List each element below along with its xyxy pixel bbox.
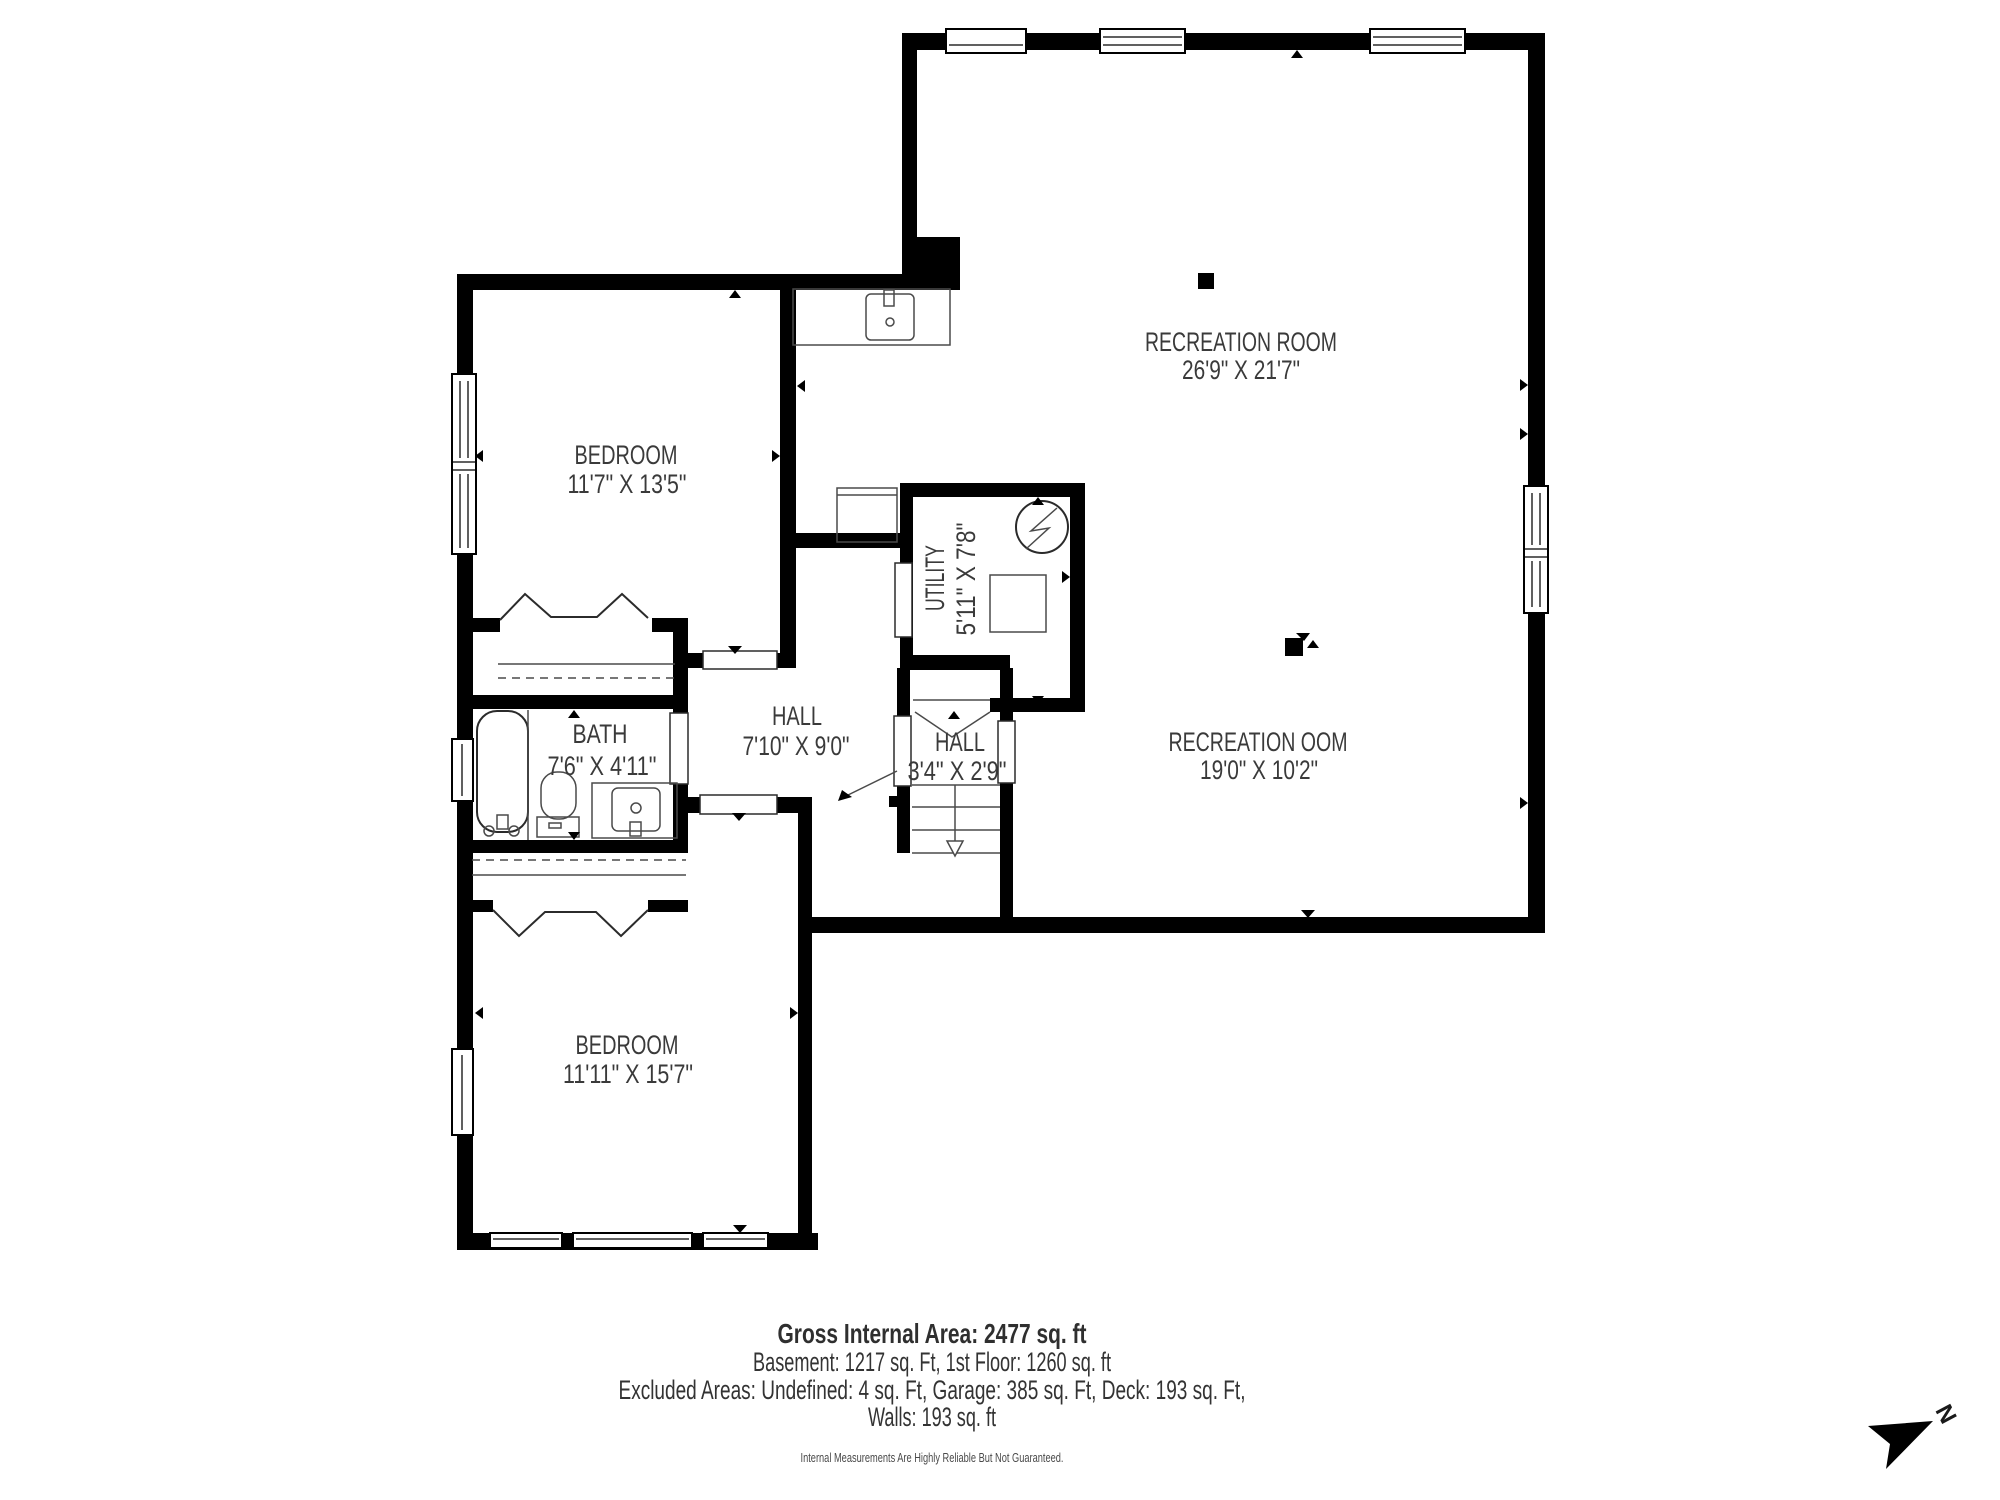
room-label-hall-small: HALL [935, 727, 985, 757]
room-label-recreation-lower: RECREATION OOM [1169, 727, 1348, 757]
floor-plan-canvas: RECREATION ROOM 26'9" X 21'7" RECREATION… [0, 0, 2000, 1500]
marker-down-bedroom2-door [732, 813, 746, 821]
window-bottom-2 [573, 1233, 692, 1248]
wall-rec-left-upper [902, 33, 917, 237]
wall-utility-top [900, 483, 1085, 497]
room-label-utility: UTILITY [920, 545, 950, 611]
room-dims-recreation-lower: 19'0" X 10'2" [1200, 755, 1318, 785]
north-arrow-label: N [1930, 1400, 1962, 1428]
room-dims-utility: 5'11" X 7'8" [951, 523, 981, 636]
room-dims-bedroom-lower: 11'11" X 15'7" [563, 1059, 693, 1089]
kitchen-drain [886, 318, 894, 326]
north-arrow-pointer [1868, 1421, 1933, 1469]
marker-right-recwall-b [1520, 428, 1528, 440]
room-label-bath: BATH [573, 719, 628, 749]
footer: Gross Internal Area: 2477 sq. ft Basemen… [619, 1318, 1246, 1465]
wall-bath-bottom [457, 840, 688, 853]
footer-areas-line2: Excluded Areas: Undefined: 4 sq. Ft, Gar… [619, 1375, 1246, 1405]
toilet-handle [549, 823, 561, 828]
wall-utility-bottom-left [905, 655, 1010, 670]
wall-bedroom2-right [798, 797, 812, 1250]
water-heater-icon [1016, 501, 1068, 553]
footer-areas-line1: Basement: 1217 sq. Ft, 1st Floor: 1260 s… [753, 1347, 1111, 1377]
wall-rec-bottom [798, 917, 1545, 933]
wall-stairs-right [1000, 668, 1013, 932]
marker-left-bedroom2 [475, 1007, 483, 1019]
marker-up-hall2 [948, 711, 960, 719]
marker-up-bath [568, 710, 580, 718]
wall-closet1-stub-left [457, 618, 500, 632]
recess-bath-door [670, 713, 688, 784]
wall-closet2-stub-left [457, 900, 493, 912]
room-dims-hall-main: 7'10" X 9'0" [743, 731, 850, 761]
bathtub [477, 711, 528, 832]
footer-areas-line3: Walls: 193 sq. ft [868, 1402, 996, 1432]
room-dims-recreation-upper: 26'9" X 21'7" [1182, 355, 1300, 385]
floor-plan-page: RECREATION ROOM 26'9" X 21'7" RECREATION… [0, 0, 2000, 1500]
hall-door-swing [846, 771, 897, 796]
marker-right-bedroom2 [790, 1007, 798, 1019]
window-top-1 [946, 29, 1026, 53]
wall-closet2-stub-right [648, 900, 688, 912]
wall-bath-top [457, 695, 688, 709]
bathtub-faucet [497, 815, 508, 829]
window-bottom-1 [490, 1233, 562, 1248]
hall-door-swing-arrow [838, 790, 852, 801]
closet2-bifold-doors [493, 910, 648, 936]
kitchen-counter [793, 289, 950, 345]
marker-down-rec-bottom [1301, 910, 1315, 918]
column-marker-icon-1 [1198, 273, 1214, 289]
room-label-bedroom-upper: BEDROOM [575, 440, 678, 470]
kitchen-faucet [884, 290, 894, 306]
window-top-3 [1370, 29, 1465, 53]
window-bedroom1-left [452, 374, 476, 554]
room-label-recreation-upper: RECREATION ROOM [1145, 327, 1337, 357]
column-marker-2-flag-b [1307, 640, 1319, 648]
marker-down-bedroom2-window [733, 1225, 747, 1233]
marker-up-bedroom1 [729, 290, 741, 298]
marker-right-recwall-c [1520, 797, 1528, 809]
opening-hall-to-bedroom2 [700, 795, 777, 814]
vanity-counter [592, 783, 677, 838]
window-top-2 [1100, 29, 1185, 53]
vanity-drain [631, 803, 641, 813]
vanity-faucet [630, 822, 641, 836]
hall-door-stop [889, 796, 900, 807]
marker-right-utility [1062, 571, 1070, 583]
wall-bedroom1-top [457, 274, 960, 290]
wall-rec-right [1528, 33, 1545, 933]
room-label-hall-main: HALL [772, 701, 822, 731]
room-dims-hall-small: 3'4" X 2'9" [908, 756, 1007, 786]
kitchen-sink [866, 294, 914, 340]
vanity-sink [612, 788, 660, 831]
wall-hall2-left-upper [897, 668, 910, 723]
wall-hall2-left-lower [897, 780, 910, 853]
wall-utility-right [1070, 483, 1085, 712]
recess-utility-door [895, 563, 912, 637]
marker-up-rec-top [1291, 50, 1303, 58]
marker-right-recwall-a [1520, 379, 1528, 391]
opening-bedroom1-to-hall [703, 651, 777, 669]
wall-hall-north [792, 533, 905, 548]
room-dims-bedroom-upper: 11'7" X 13'5" [568, 469, 687, 499]
footer-disclaimer: Internal Measurements Are Highly Reliabl… [801, 1450, 1064, 1465]
marker-right-bedroom1 [772, 450, 780, 462]
room-dims-bath: 7'6" X 4'11" [548, 751, 657, 781]
wall-closet1-stub-right [652, 618, 688, 632]
marker-left-corridor [797, 380, 805, 392]
appliance-box [990, 575, 1046, 632]
room-label-bedroom-lower: BEDROOM [576, 1030, 679, 1060]
north-arrow-icon: N [1868, 1400, 1962, 1469]
closet1-bifold-doors [500, 594, 648, 620]
water-heater-bolt [1026, 508, 1057, 549]
marker-down-bath [568, 832, 580, 840]
footer-gross-area: Gross Internal Area: 2477 sq. ft [778, 1318, 1087, 1349]
window-bottom-3 [703, 1233, 768, 1248]
column-marker-icon-2 [1285, 638, 1303, 656]
